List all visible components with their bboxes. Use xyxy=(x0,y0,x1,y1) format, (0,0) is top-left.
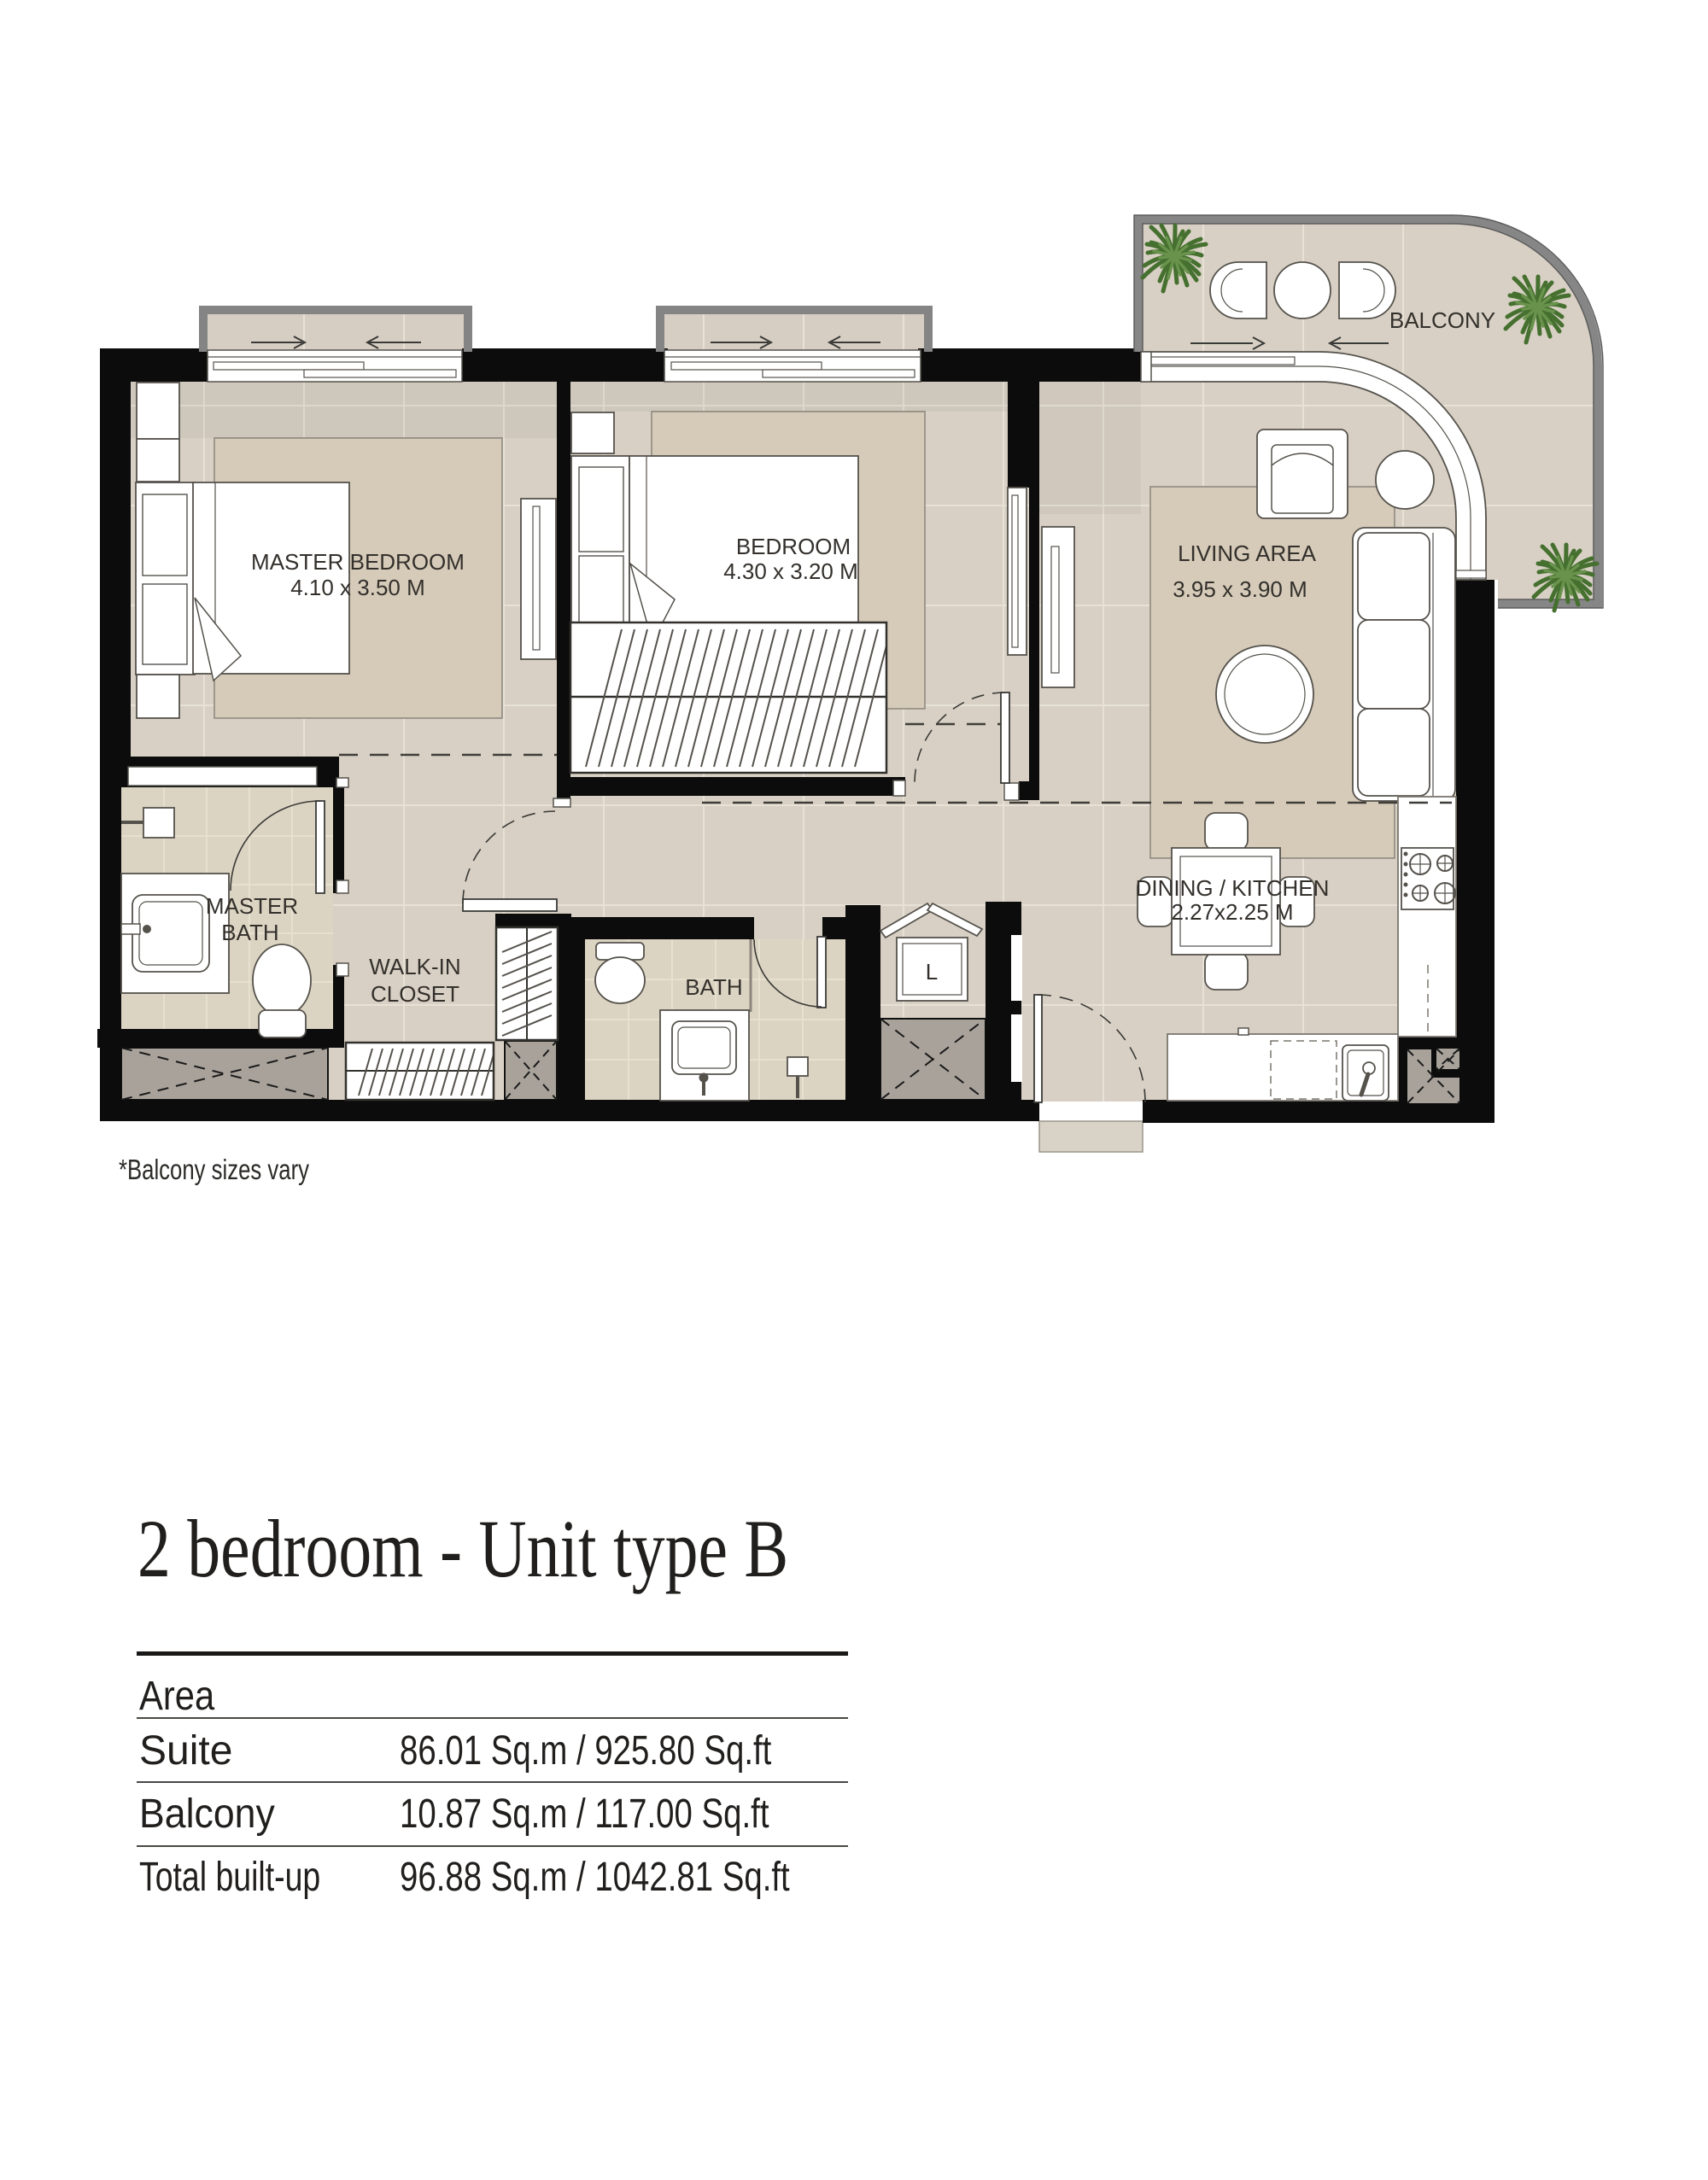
svg-text:DINING / KITCHEN: DINING / KITCHEN xyxy=(1136,875,1330,901)
svg-text:MASTER BEDROOM: MASTER BEDROOM xyxy=(251,549,465,575)
svg-text:4.30 x 3.20 M: 4.30 x 3.20 M xyxy=(723,558,858,584)
svg-text:L: L xyxy=(926,959,938,985)
svg-text:Suite: Suite xyxy=(139,1728,232,1774)
svg-text:3.95 x 3.90 M: 3.95 x 3.90 M xyxy=(1173,576,1307,602)
svg-text:BEDROOM: BEDROOM xyxy=(736,534,851,559)
svg-text:Total built-up: Total built-up xyxy=(139,1855,320,1901)
svg-text:BALCONY: BALCONY xyxy=(1389,307,1495,333)
svg-text:2.27x2.25 M: 2.27x2.25 M xyxy=(1171,899,1293,925)
svg-text:10.87 Sq.m / 117.00 Sq.ft: 10.87 Sq.m / 117.00 Sq.ft xyxy=(400,1791,769,1837)
svg-text:4.10 x 3.50 M: 4.10 x 3.50 M xyxy=(290,575,425,600)
svg-text:Balcony: Balcony xyxy=(139,1791,276,1837)
svg-text:96.88 Sq.m / 1042.81 Sq.ft: 96.88 Sq.m / 1042.81 Sq.ft xyxy=(400,1855,790,1900)
svg-text:86.01 Sq.m / 925.80 Sq.ft: 86.01 Sq.m / 925.80 Sq.ft xyxy=(400,1728,771,1774)
svg-text:2 bedroom - Unit type B: 2 bedroom - Unit type B xyxy=(137,1503,788,1594)
svg-text:BATH: BATH xyxy=(685,974,742,1000)
svg-text:*Balcony sizes vary: *Balcony sizes vary xyxy=(119,1154,309,1186)
svg-text:Area: Area xyxy=(139,1672,215,1718)
svg-text:BATH: BATH xyxy=(221,920,278,945)
svg-text:WALK-IN: WALK-IN xyxy=(369,954,460,979)
svg-text:LIVING AREA: LIVING AREA xyxy=(1178,541,1316,566)
svg-text:CLOSET: CLOSET xyxy=(371,981,459,1007)
svg-text:MASTER: MASTER xyxy=(206,893,298,919)
